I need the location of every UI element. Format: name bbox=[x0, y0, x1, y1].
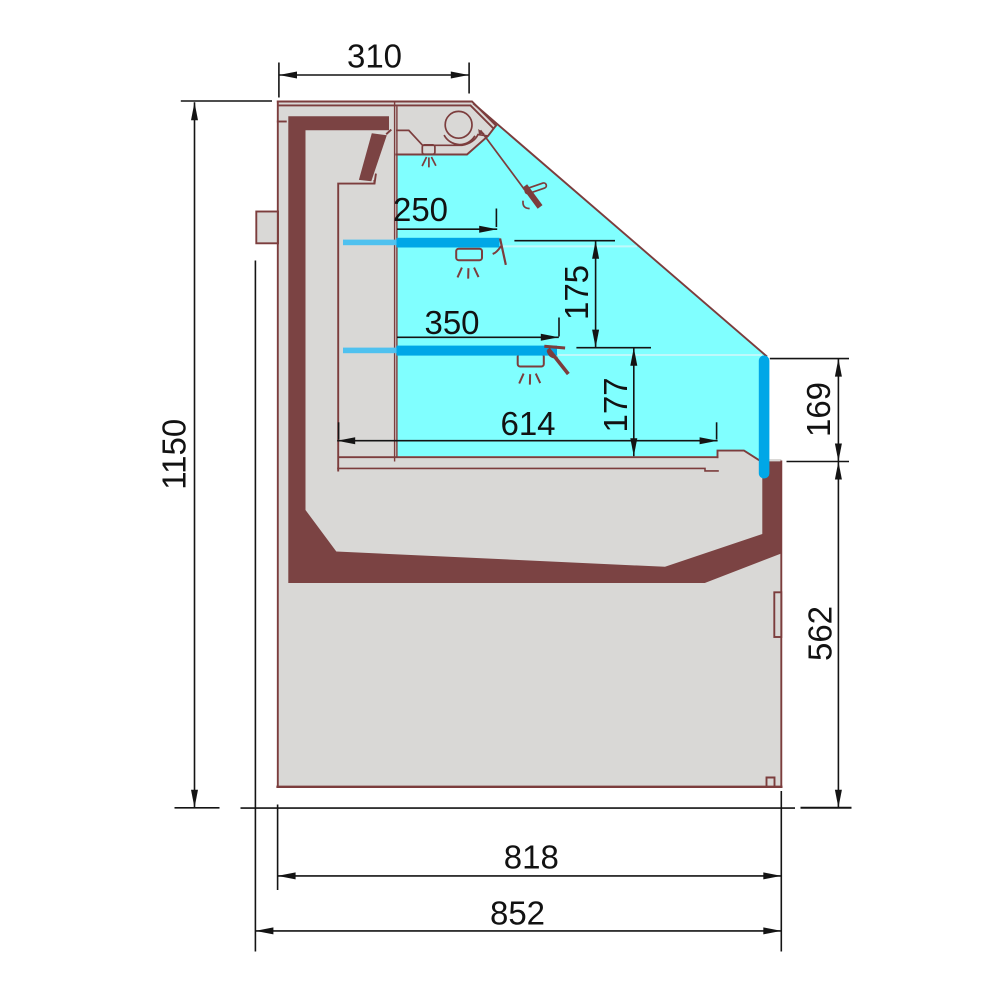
svg-text:175: 175 bbox=[558, 265, 595, 320]
svg-text:818: 818 bbox=[504, 839, 559, 876]
svg-text:177: 177 bbox=[597, 377, 634, 432]
svg-text:169: 169 bbox=[800, 382, 837, 437]
svg-text:614: 614 bbox=[500, 405, 555, 442]
svg-text:250: 250 bbox=[393, 191, 448, 228]
svg-text:1150: 1150 bbox=[156, 419, 193, 490]
svg-text:350: 350 bbox=[424, 304, 479, 341]
svg-text:310: 310 bbox=[347, 37, 402, 74]
svg-text:852: 852 bbox=[490, 894, 545, 931]
svg-text:562: 562 bbox=[801, 606, 838, 661]
